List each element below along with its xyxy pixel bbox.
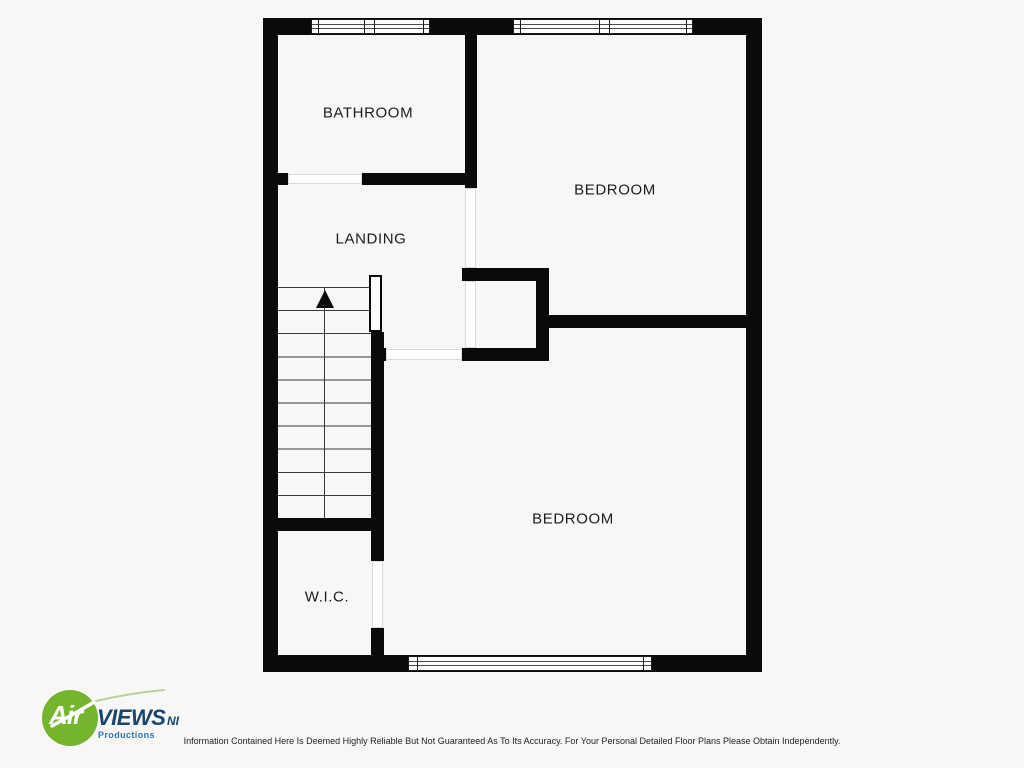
room-label-wic: W.I.C. (305, 589, 349, 606)
stairs-up-arrow-icon (316, 290, 334, 308)
bedroom-top-door-opening (465, 188, 476, 268)
room-label-bedroom-top: BEDROOM (574, 182, 656, 199)
closet-wall-top (462, 268, 549, 281)
stairs-bottom-wall (278, 518, 384, 531)
stairs-centerline (324, 288, 325, 518)
staircase (278, 287, 371, 518)
disclaimer-text: Information Contained Here Is Deemed Hig… (0, 736, 1024, 746)
room-label-bathroom: BATHROOM (323, 105, 413, 122)
bedroom-divider-wall (549, 315, 746, 328)
bathroom-landing-wall (362, 173, 477, 185)
wic-right-wall-lower (371, 628, 384, 655)
floor-plan: BATHROOM BEDROOM LANDING BEDROOM W.I.C. (0, 0, 1024, 768)
wic-right-wall-upper (371, 531, 384, 561)
footer: Air VIEWS NI Productions Information Con… (0, 680, 1024, 768)
closet-wall-right (536, 281, 549, 348)
stairs-right-wall (371, 332, 384, 518)
logo-views-text: VIEWS (97, 705, 165, 731)
bathroom-bedroom-wall (465, 35, 477, 188)
bathroom-door-opening (288, 174, 362, 184)
wic-door-opening (372, 561, 383, 628)
outer-wall-left (263, 18, 278, 672)
closet-wall-bottom (462, 348, 549, 361)
closet-door-opening (465, 281, 476, 348)
bedroom-top-window (513, 19, 693, 34)
outer-wall-right (746, 18, 762, 672)
room-label-bedroom-bottom: BEDROOM (532, 511, 614, 528)
bedroom-bottom-door-opening (386, 349, 462, 360)
logo-ni-text: NI (167, 714, 179, 728)
bathroom-landing-wall-stub (278, 173, 288, 185)
bedroom-bottom-window (408, 656, 652, 671)
stairs-newel-post (369, 275, 382, 332)
room-label-landing: LANDING (336, 231, 407, 248)
bathroom-window (311, 19, 430, 34)
